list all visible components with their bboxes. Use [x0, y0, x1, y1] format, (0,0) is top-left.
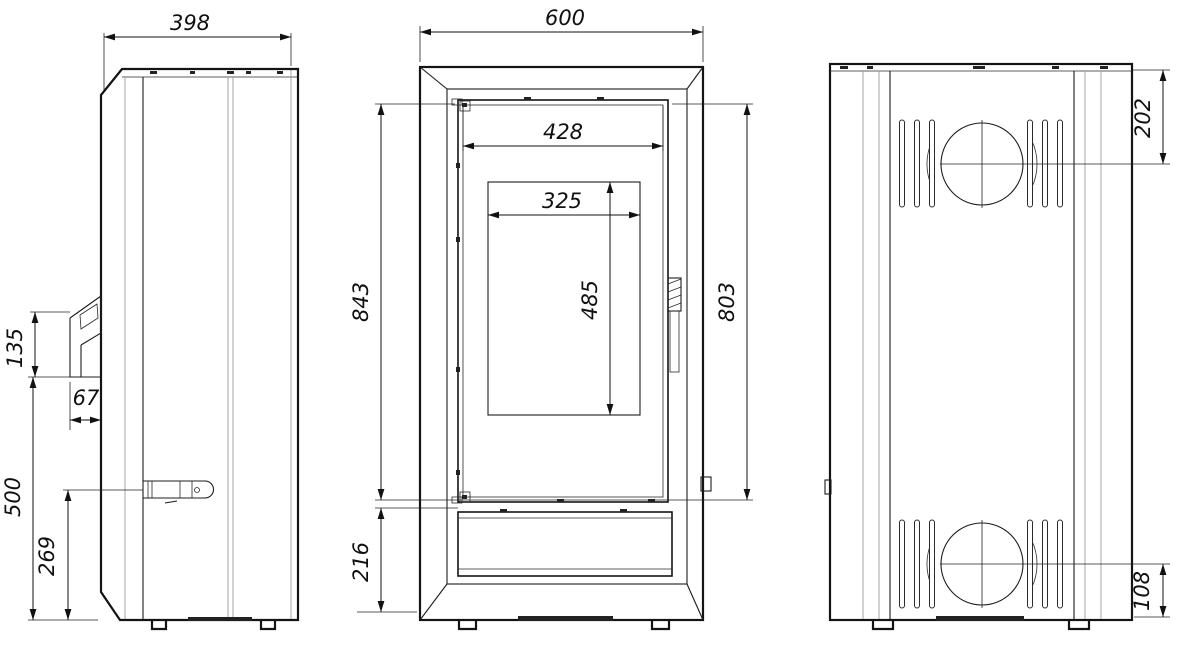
dim-width: 600 [545, 6, 585, 30]
dim-depth: 398 [170, 11, 210, 35]
dim-glass-height: 485 [578, 280, 602, 320]
dim-glass-width: 325 [542, 189, 582, 213]
dim-door-height: 803 [715, 282, 739, 322]
stove-three-view-drawing: 398 135 67 500 269 600 428 325 485 [0, 0, 1189, 651]
dimensions: 398 135 67 500 269 600 428 325 485 [1, 6, 1170, 620]
rear-body-outline [830, 64, 1132, 620]
foot [652, 620, 669, 629]
foot [873, 620, 893, 629]
frame-opening [447, 89, 687, 584]
dim-base-height: 216 [349, 542, 373, 582]
rear-view [825, 64, 1132, 629]
vent-slots-top [900, 120, 1063, 207]
door-latch [668, 278, 681, 372]
side-body-outline [101, 69, 298, 620]
dim-intake-height: 135 [3, 328, 27, 368]
door-handle-side [143, 481, 214, 503]
foot [459, 620, 476, 629]
door [458, 100, 668, 502]
front-view [420, 67, 711, 629]
base-shadow [936, 616, 1024, 621]
door-glass [488, 182, 640, 415]
base-shadow [188, 617, 252, 621]
base-shadow [518, 616, 613, 621]
top-plate-hatch [840, 66, 1108, 69]
dim-flue-from-top: 202 [1131, 98, 1155, 138]
top-plate-hatch [150, 71, 283, 74]
foot [152, 620, 166, 629]
dim-intake-depth: 67 [73, 386, 100, 410]
technical-drawing-canvas: 398 135 67 500 269 600 428 325 485 [0, 0, 1189, 651]
dim-intake-elevation: 500 [1, 477, 25, 517]
dim-handle-elevation: 269 [35, 536, 59, 576]
dim-inlet-from-bottom: 108 [1130, 571, 1154, 611]
side-view [70, 69, 298, 629]
front-frame-outline [420, 67, 703, 620]
dim-body-height: 843 [349, 282, 373, 322]
ash-drawer-front [458, 509, 672, 576]
dim-door-width: 428 [543, 120, 583, 144]
rear-air-intake-stub [70, 296, 101, 377]
foot [1069, 620, 1089, 629]
foot [261, 620, 275, 629]
